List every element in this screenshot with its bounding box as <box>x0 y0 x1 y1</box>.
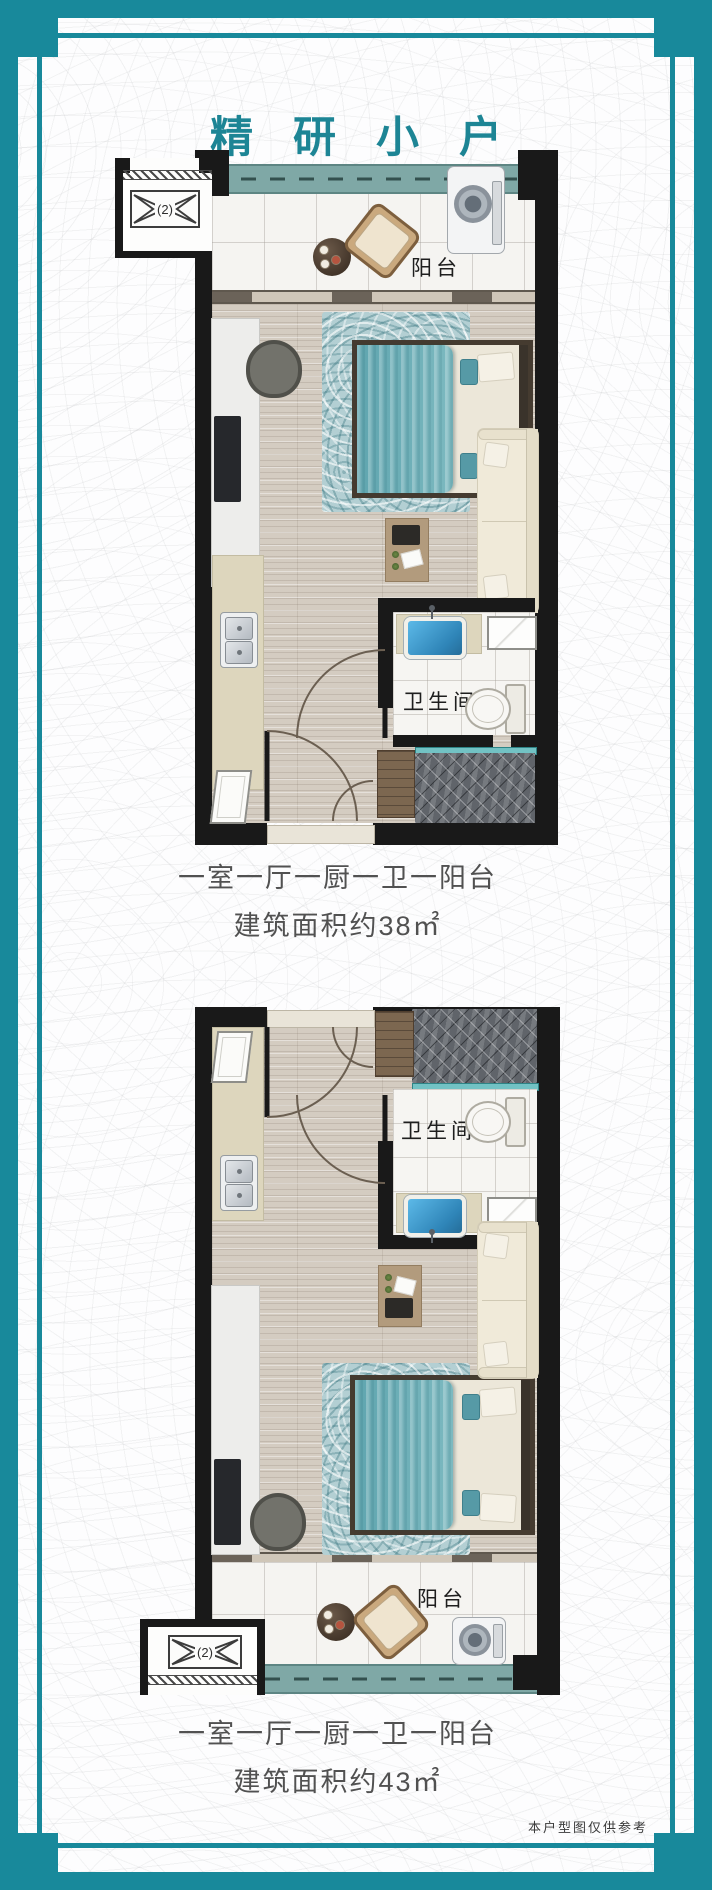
plan-43-area-text: 建筑面积约43㎡ <box>115 1760 560 1799</box>
door-swing-arcs <box>115 1007 560 1695</box>
door-swing-arcs <box>115 150 558 845</box>
frame-corner-tl <box>0 0 58 57</box>
plan-43-rooms-text: 一室一厅一厨一卫一阳台 <box>115 1712 560 1751</box>
plan-43-caption: 一室一厅一厨一卫一阳台 建筑面积约43㎡ <box>115 1712 560 1799</box>
frame-corner-bl <box>0 1833 58 1890</box>
plan-38-rooms-text: 一室一厅一厨一卫一阳台 <box>115 856 560 895</box>
plan-38-caption: 一室一厅一厨一卫一阳台 建筑面积约38㎡ <box>115 856 560 943</box>
disclaimer-note: 本户型图仅供参考 <box>528 1817 648 1836</box>
frame-corner-br <box>654 1833 712 1890</box>
floor-plan-43: (2) 卫生间 <box>115 1007 560 1695</box>
floorplan-poster: 精研小户 (2) <box>0 0 712 1890</box>
floor-plan-38: (2) 阳台 <box>115 150 558 845</box>
frame-corner-tr <box>654 0 712 57</box>
plan-38-area-text: 建筑面积约38㎡ <box>115 904 560 943</box>
